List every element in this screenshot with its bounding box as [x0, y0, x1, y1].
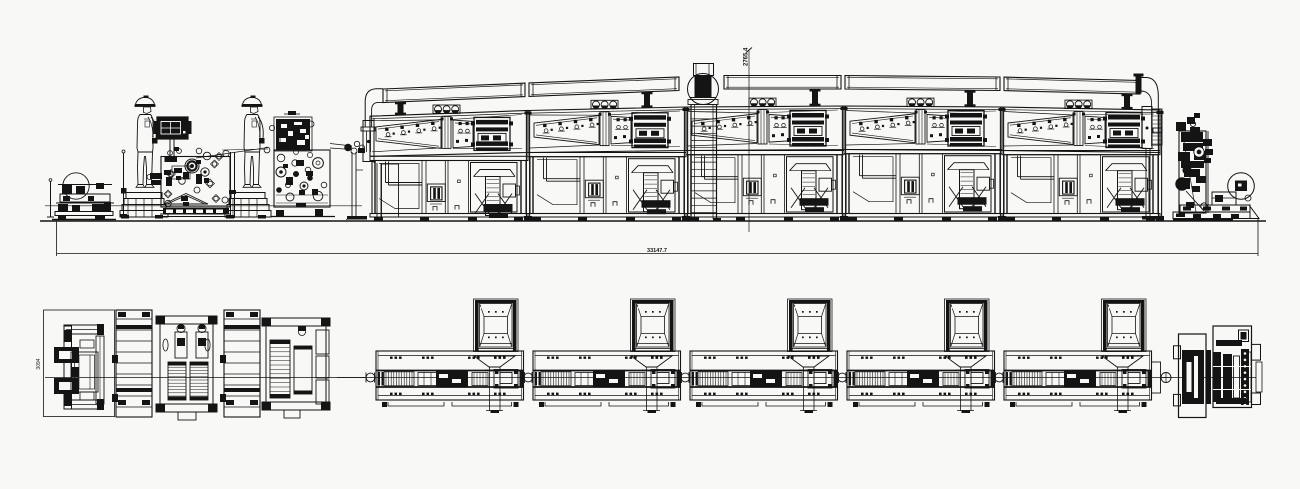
- svg-text:2765.4: 2765.4: [744, 47, 750, 66]
- svg-text:33147.7: 33147.7: [647, 248, 667, 254]
- svg-text:3094: 3094: [36, 358, 42, 369]
